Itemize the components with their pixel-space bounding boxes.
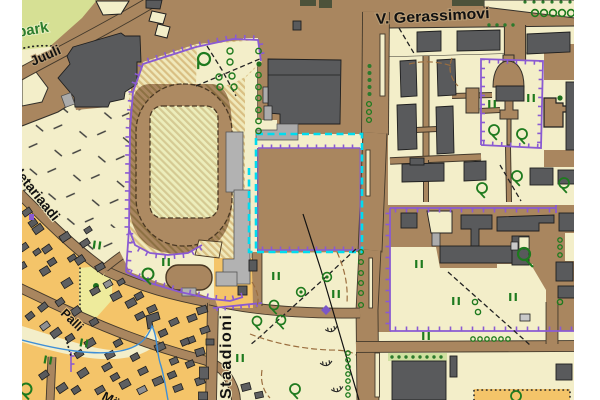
svg-text:Staadioni: Staadioni — [218, 313, 235, 399]
